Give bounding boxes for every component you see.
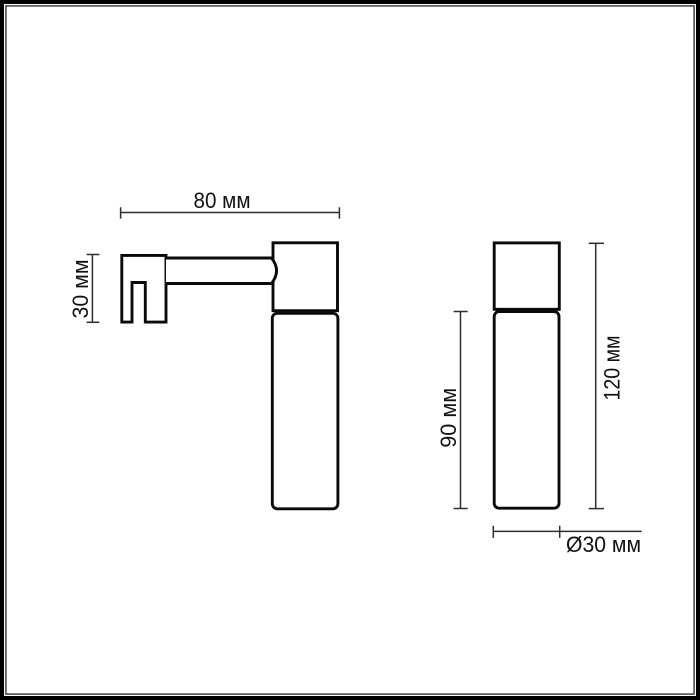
svg-text:Ø30 мм: Ø30 мм <box>566 532 641 557</box>
svg-text:90 мм: 90 мм <box>436 388 461 448</box>
svg-text:80 мм: 80 мм <box>194 188 251 213</box>
svg-text:30 мм: 30 мм <box>68 260 93 319</box>
svg-text:120 мм: 120 мм <box>599 336 624 401</box>
